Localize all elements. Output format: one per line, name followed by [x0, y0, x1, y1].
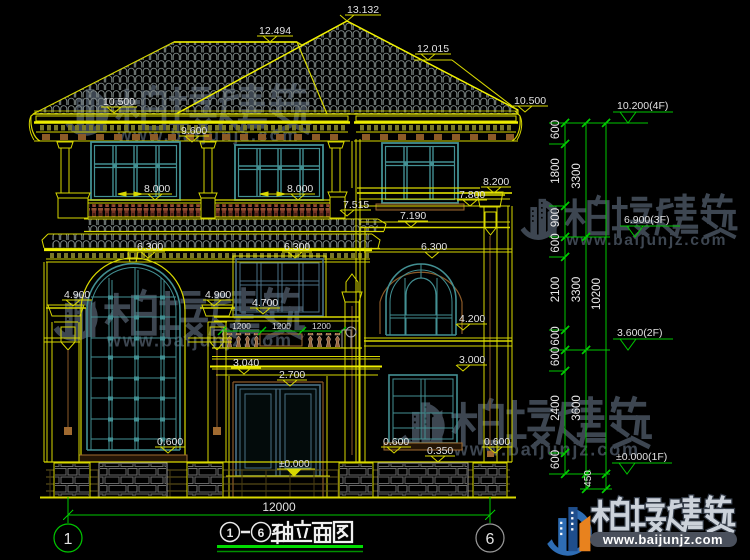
svg-text:2400: 2400: [550, 395, 562, 421]
svg-text:4.900: 4.900: [64, 289, 90, 301]
svg-text:2.700: 2.700: [279, 369, 305, 381]
svg-text:12.015: 12.015: [417, 43, 449, 55]
svg-text:0.350: 0.350: [427, 445, 453, 457]
svg-text:1800: 1800: [550, 158, 562, 184]
svg-text:6: 6: [486, 531, 495, 548]
svg-text:0.600: 0.600: [484, 436, 510, 448]
svg-text:3300: 3300: [571, 277, 583, 303]
svg-text:8.200: 8.200: [483, 176, 509, 188]
svg-text:13.132: 13.132: [347, 4, 379, 16]
svg-text:0.600: 0.600: [157, 436, 183, 448]
svg-text:10.200(4F): 10.200(4F): [617, 100, 668, 112]
svg-text:1: 1: [227, 526, 234, 540]
svg-text:7.515: 7.515: [343, 199, 369, 211]
svg-text:8.000: 8.000: [144, 183, 170, 195]
svg-text:3.000: 3.000: [459, 354, 485, 366]
svg-text:0.600: 0.600: [383, 436, 409, 448]
svg-text:1200: 1200: [272, 321, 291, 331]
svg-text:600: 600: [550, 450, 562, 469]
svg-text:4.900: 4.900: [205, 289, 231, 301]
svg-text:600: 600: [550, 120, 562, 139]
svg-text:10200: 10200: [591, 278, 603, 310]
svg-text:3.600(2F): 3.600(2F): [617, 327, 663, 339]
svg-text:www.baijunjz.com: www.baijunjz.com: [453, 440, 640, 460]
svg-text:4.200: 4.200: [459, 313, 485, 325]
svg-text:6.300: 6.300: [421, 241, 447, 253]
svg-text:10.500: 10.500: [103, 96, 135, 108]
svg-text:12.494: 12.494: [259, 25, 291, 37]
svg-text:7.800: 7.800: [459, 189, 485, 201]
svg-text:3.040: 3.040: [233, 357, 259, 369]
svg-text:1200: 1200: [232, 321, 251, 331]
svg-text:4.700: 4.700: [252, 297, 278, 309]
svg-text:1200: 1200: [312, 321, 331, 331]
svg-text:10.500: 10.500: [514, 95, 546, 107]
svg-text:±0.000(1F): ±0.000(1F): [616, 451, 667, 463]
svg-text:6.900(3F): 6.900(3F): [624, 214, 670, 226]
svg-text:3600: 3600: [571, 395, 583, 421]
svg-text:450: 450: [583, 470, 594, 487]
svg-text:6.300: 6.300: [284, 241, 310, 253]
svg-text:900: 900: [550, 208, 562, 227]
svg-text:www.baijunjz.com: www.baijunjz.com: [602, 532, 723, 547]
svg-text:600: 600: [550, 326, 562, 345]
svg-text:2100: 2100: [550, 277, 562, 303]
svg-text:8.000: 8.000: [287, 183, 313, 195]
svg-text:3300: 3300: [571, 163, 583, 189]
svg-text:±0.000: ±0.000: [279, 459, 310, 470]
svg-text:12000: 12000: [262, 500, 296, 514]
svg-text:600: 600: [550, 347, 562, 366]
svg-text:6: 6: [258, 526, 265, 540]
svg-text:1: 1: [64, 531, 73, 548]
svg-text:600: 600: [550, 233, 562, 252]
svg-text:9.600: 9.600: [181, 125, 207, 137]
svg-text:6.300: 6.300: [137, 241, 163, 253]
svg-text:7.190: 7.190: [400, 210, 426, 222]
